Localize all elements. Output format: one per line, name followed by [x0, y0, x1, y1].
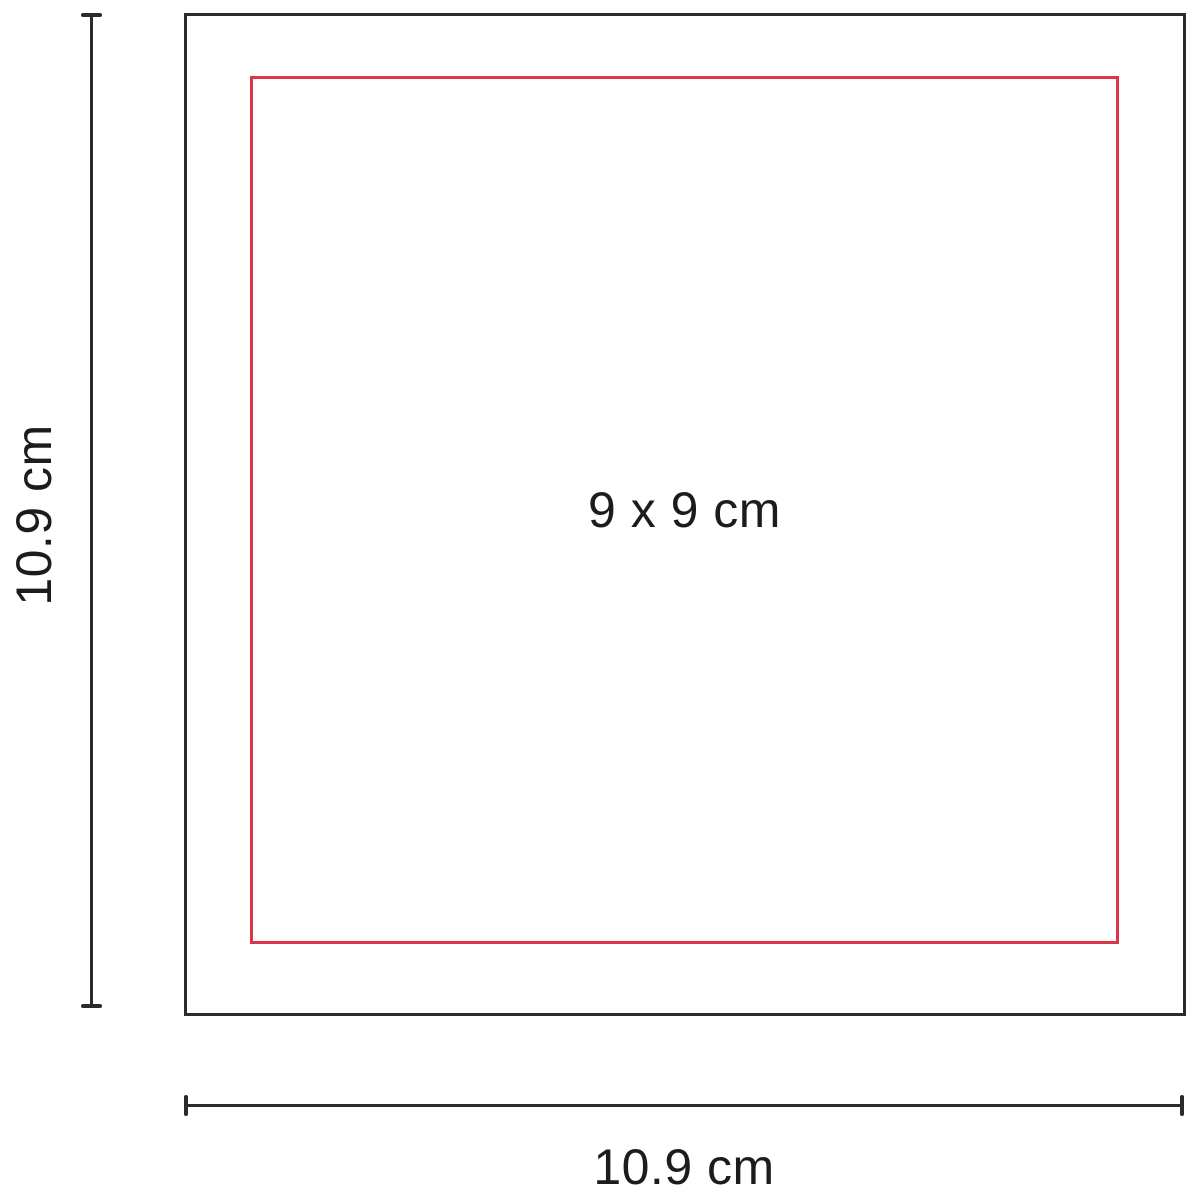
- width-dimension-label: 10.9 cm: [185, 1138, 1183, 1196]
- horizontal-dimension-line: [185, 1104, 1183, 1107]
- horizontal-dimension-right-tick: [1180, 1095, 1184, 1116]
- print-area-dimension-label: 9 x 9 cm: [588, 481, 781, 539]
- horizontal-dimension-left-tick: [184, 1095, 188, 1116]
- vertical-dimension-line: [90, 14, 93, 1007]
- dimension-diagram: 9 x 9 cm 10.9 cm 10.9 cm: [0, 0, 1200, 1200]
- vertical-dimension-bottom-tick: [81, 1004, 102, 1008]
- print-area-square: 9 x 9 cm: [250, 76, 1119, 944]
- vertical-dimension-top-tick: [81, 13, 102, 17]
- height-dimension-label: 10.9 cm: [5, 424, 63, 605]
